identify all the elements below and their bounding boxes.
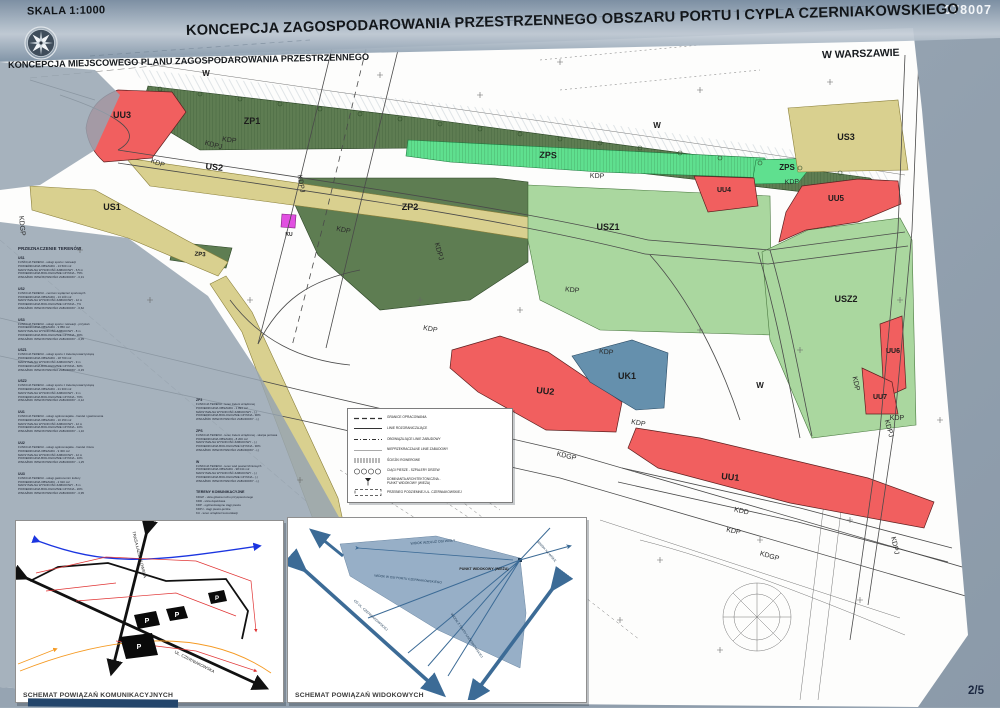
views-inset-caption: SCHEMAT POWIĄZAŃ WIDOKOWYCH xyxy=(295,692,424,699)
legend-symbol-dashdot-icon xyxy=(353,435,387,444)
legend-symbol-dash-icon xyxy=(353,414,387,423)
land-use-line: WSKAŹNIK INTENSYWNOŚCI ZABUDOWY - 0,15 xyxy=(18,369,122,373)
zone-label-usz2: USZ2 xyxy=(834,294,857,304)
plan-document: { "header": { "scale": "SKALA 1:1000", "… xyxy=(0,0,1000,707)
zone-label-zp3: ZP3 xyxy=(194,252,206,259)
zone-label-uu1: UU1 xyxy=(721,471,740,483)
zone-label-uu2: UU2 xyxy=(536,385,555,397)
land-use-block-usz1: USZ1FUNKCJA TERENU - usługi sportu z zie… xyxy=(18,348,122,372)
road-label-kdgp: KDGP xyxy=(759,550,780,562)
zone-label-us1: US1 xyxy=(103,202,121,212)
legend-symbol-solid-icon xyxy=(353,424,387,433)
land-use-line: WSKAŹNIK INTENSYWNOŚCI ZABUDOWY - 0,35 xyxy=(18,338,122,342)
transport-item: KU - teren urządzeń komunikacji xyxy=(196,512,326,516)
road-label-kdgp: KDGP xyxy=(556,451,577,463)
road-label-kdp: KDP xyxy=(890,415,905,422)
legend-row: LINIE ROZGRANICZAJĄCE xyxy=(353,424,507,435)
road-label-kdp: KDP xyxy=(631,419,647,428)
parking-p: P xyxy=(175,612,180,619)
zone-label-w: W xyxy=(756,381,764,390)
land-use-block-zps: ZPSFUNKCJA TERENU - teren zieleni urządz… xyxy=(196,429,326,453)
zone-label-zp1: ZP1 xyxy=(244,116,261,126)
legend-label: OBOWIĄZUJĄCE LINIE ZABUDOWY xyxy=(387,438,441,442)
zone-label-uu3: UU3 xyxy=(113,110,131,120)
zone-label-uk1: UK1 xyxy=(618,371,636,381)
road-label-kdpj: KDPJ xyxy=(889,536,900,555)
czerniakowska-axis-label: OŚ UL. CZERNIAKOWSKIEJ xyxy=(353,598,390,632)
legend-row: NIEPRZEKRACZALNE LINIE ZABUDOWY xyxy=(353,445,507,456)
land-use-line: WSKAŹNIK INTENSYWNOŚCI ZABUDOWY - 0,95 xyxy=(18,492,122,496)
zone-label-zp2: ZP2 xyxy=(402,202,419,212)
road-label-kdp: KDP xyxy=(590,173,605,181)
zone-label-usz1: USZ1 xyxy=(596,222,619,232)
zone-label-uu5: UU5 xyxy=(828,194,845,203)
legend-symbol-ticks-icon xyxy=(353,456,387,465)
zone-label-uu4: UU4 xyxy=(717,187,731,194)
land-use-line: WSKAŹNIK INTENSYWNOŚCI ZABUDOWY - 1,25 xyxy=(18,461,122,465)
road-label-kdd: KDD xyxy=(733,506,749,516)
legend-label: LINIE ROZGRANICZAJĄCE xyxy=(387,427,427,431)
land-use-line: WSKAŹNIK INTENSYWNOŚCI ZABUDOWY - (-) xyxy=(196,418,326,422)
transport-links-inset: P P P P TRASA ŁAZIENKOWSKA UL. CZERNIAKO… xyxy=(15,520,284,703)
land-use-line: WSKAŹNIK INTENSYWNOŚCI ZABUDOWY - 0,12 xyxy=(18,399,122,403)
survey-cross xyxy=(697,87,703,93)
zone-label-zps: ZPS xyxy=(539,150,557,161)
zone-label-w: W xyxy=(202,69,210,78)
legend-label: PRZEBIEG PODZIEMNEJ UL. CZERNIAKOWSKIEJ xyxy=(387,491,462,495)
zone-label-us3: US3 xyxy=(837,132,855,142)
road-label-kdp: KDP xyxy=(726,527,742,537)
zone-label-uu6: UU6 xyxy=(886,348,900,355)
underlying-sheet-edge xyxy=(28,698,178,707)
land-use-block-w: WFUNKCJA TERENU - teren wód powierzchnio… xyxy=(196,460,326,484)
land-use-block-zp3: ZP3FUNKCJA TERENU - teren zieleni urządz… xyxy=(196,398,326,422)
road-label-kdp: KDP xyxy=(785,179,800,187)
view-cone-area xyxy=(340,536,526,668)
page-number: 2/5 xyxy=(968,685,984,697)
legend-label: GRANICE OPRACOWANIA xyxy=(387,416,427,420)
legend-symbol-thin-icon xyxy=(353,446,387,455)
legend-row: ŚCIEŻKI ROWEROWE xyxy=(353,455,507,466)
land-use-column-b: ZP3FUNKCJA TERENU - teren zieleni urządz… xyxy=(196,398,326,515)
survey-cross xyxy=(657,557,663,563)
survey-cross xyxy=(827,79,833,85)
transport-heading: TERENY KOMUNIKACYJNE xyxy=(196,490,326,494)
land-use-block-usz2: USZ2FUNKCJA TERENU - usługi sportu z zie… xyxy=(18,379,122,403)
view-links-inset: WIDOK WZDŁUŻ OSI WISŁY PUNKT WIDOKOWY (W… xyxy=(287,517,587,703)
survey-cross xyxy=(757,537,763,543)
zone-label-w: W xyxy=(653,121,661,130)
transport-links-diagram: P P P P TRASA ŁAZIENKOWSKA UL. CZERNIAKO… xyxy=(16,521,281,700)
land-use-line: WSKAŹNIK INTENSYWNOŚCI ZABUDOWY - (-) xyxy=(196,480,326,484)
transport-terrain-list: TERENY KOMUNIKACYJNEKDGP - ulica główna … xyxy=(196,490,326,515)
parking-p: P xyxy=(137,644,142,651)
zone-label-uu7: UU7 xyxy=(873,394,887,401)
legend-symbol-dashedbox-icon xyxy=(353,488,387,497)
land-use-block-uu2: UU2FUNKCJA TERENU - usługi ogólnomiejski… xyxy=(18,441,122,465)
legend-row: PRZEBIEG PODZIEMNEJ UL. CZERNIAKOWSKIEJ xyxy=(353,487,507,498)
land-use-block-uu3: UU3FUNKCJA TERENU - usługi gastronomii i… xyxy=(18,472,122,496)
survey-cross xyxy=(857,597,863,603)
zone-label-zps: ZPS xyxy=(779,163,795,172)
legend-row: DOMINANTA ARCHITEKTONICZNA -PUNKT WIDOKO… xyxy=(353,477,507,488)
land-use-line: WSKAŹNIK INTENSYWNOŚCI ZABUDOWY - 1,10 xyxy=(18,430,122,434)
map-legend: GRANICE OPRACOWANIALINIE ROZGRANICZAJĄCE… xyxy=(347,408,513,503)
zone-uu1 xyxy=(628,428,934,528)
legend-label: NIEPRZEKRACZALNE LINIE ZABUDOWY xyxy=(387,448,448,452)
city-subtitle: W WARSZAWIE xyxy=(822,47,900,61)
land-use-heading: PRZEZNACZENIE TERENÓW xyxy=(18,246,122,251)
legend-row: CIĄGI PIESZE - SZPALERY DRZEW xyxy=(353,466,507,477)
survey-cross xyxy=(377,72,383,78)
legend-symbol-viewpoint-icon xyxy=(353,477,387,486)
wisla-view-label: WIDOK NA WISŁĘ xyxy=(536,540,557,563)
survey-cross xyxy=(717,647,723,653)
land-use-block-us1: US1FUNKCJA TERENU - usługi sportu i rekr… xyxy=(18,256,122,280)
view-links-diagram: WIDOK WZDŁUŻ OSI WISŁY PUNKT WIDOKOWY (W… xyxy=(288,518,584,700)
scale-label: SKALA 1:1000 xyxy=(27,4,106,17)
parking-p: P xyxy=(215,596,219,602)
legend-symbol-circles-icon xyxy=(353,467,387,476)
out-of-plan-wash-topleft xyxy=(0,62,120,190)
legend-label: ŚCIEŻKI ROWEROWE xyxy=(387,459,420,463)
land-use-column-a: PRZEZNACZENIE TERENÓWUS1FUNKCJA TERENU -… xyxy=(18,246,122,503)
legend-label: DOMINANTA ARCHITEKTONICZNA -PUNKT WIDOKO… xyxy=(387,478,441,486)
land-use-block-us2: US2FUNKCJA TERENU - centrum wydarzeń spo… xyxy=(18,287,122,311)
land-use-line: WSKAŹNIK INTENSYWNOŚCI ZABUDOWY - (-) xyxy=(196,449,326,453)
parking-lots: P P P P xyxy=(120,590,227,659)
survey-cross xyxy=(927,117,933,123)
zone-label-us2: US2 xyxy=(205,161,223,173)
viewpoint-label: PUNKT WIDOKOWY (WIEŻA) xyxy=(459,567,509,571)
survey-cross xyxy=(937,417,943,423)
legend-row: OBOWIĄZUJĄCE LINIE ZABUDOWY xyxy=(353,434,507,445)
land-use-line: WSKAŹNIK INTENSYWNOŚCI ZABUDOWY - 0,62 xyxy=(18,307,122,311)
land-use-block-us3: US3FUNKCJA TERENU - usługi sportu i rekr… xyxy=(18,318,122,342)
survey-cross xyxy=(247,297,253,303)
road-label-kdp: KDP xyxy=(423,325,439,334)
survey-cross xyxy=(517,307,523,313)
land-use-line: WSKAŹNIK INTENSYWNOŚCI ZABUDOWY - 0,31 xyxy=(18,276,122,280)
compass-rose-icon xyxy=(22,24,60,62)
parking-p: P xyxy=(145,618,150,625)
land-use-block-uu1: UU1FUNKCJA TERENU - usługi ogólnomiejski… xyxy=(18,410,122,434)
survey-cross xyxy=(477,92,483,98)
legend-label: CIĄGI PIESZE - SZPALERY DRZEW xyxy=(387,469,440,473)
survey-cross xyxy=(617,617,623,623)
legend-row: GRANICE OPRACOWANIA xyxy=(353,413,507,424)
zone-label-ku: KU xyxy=(285,232,293,238)
